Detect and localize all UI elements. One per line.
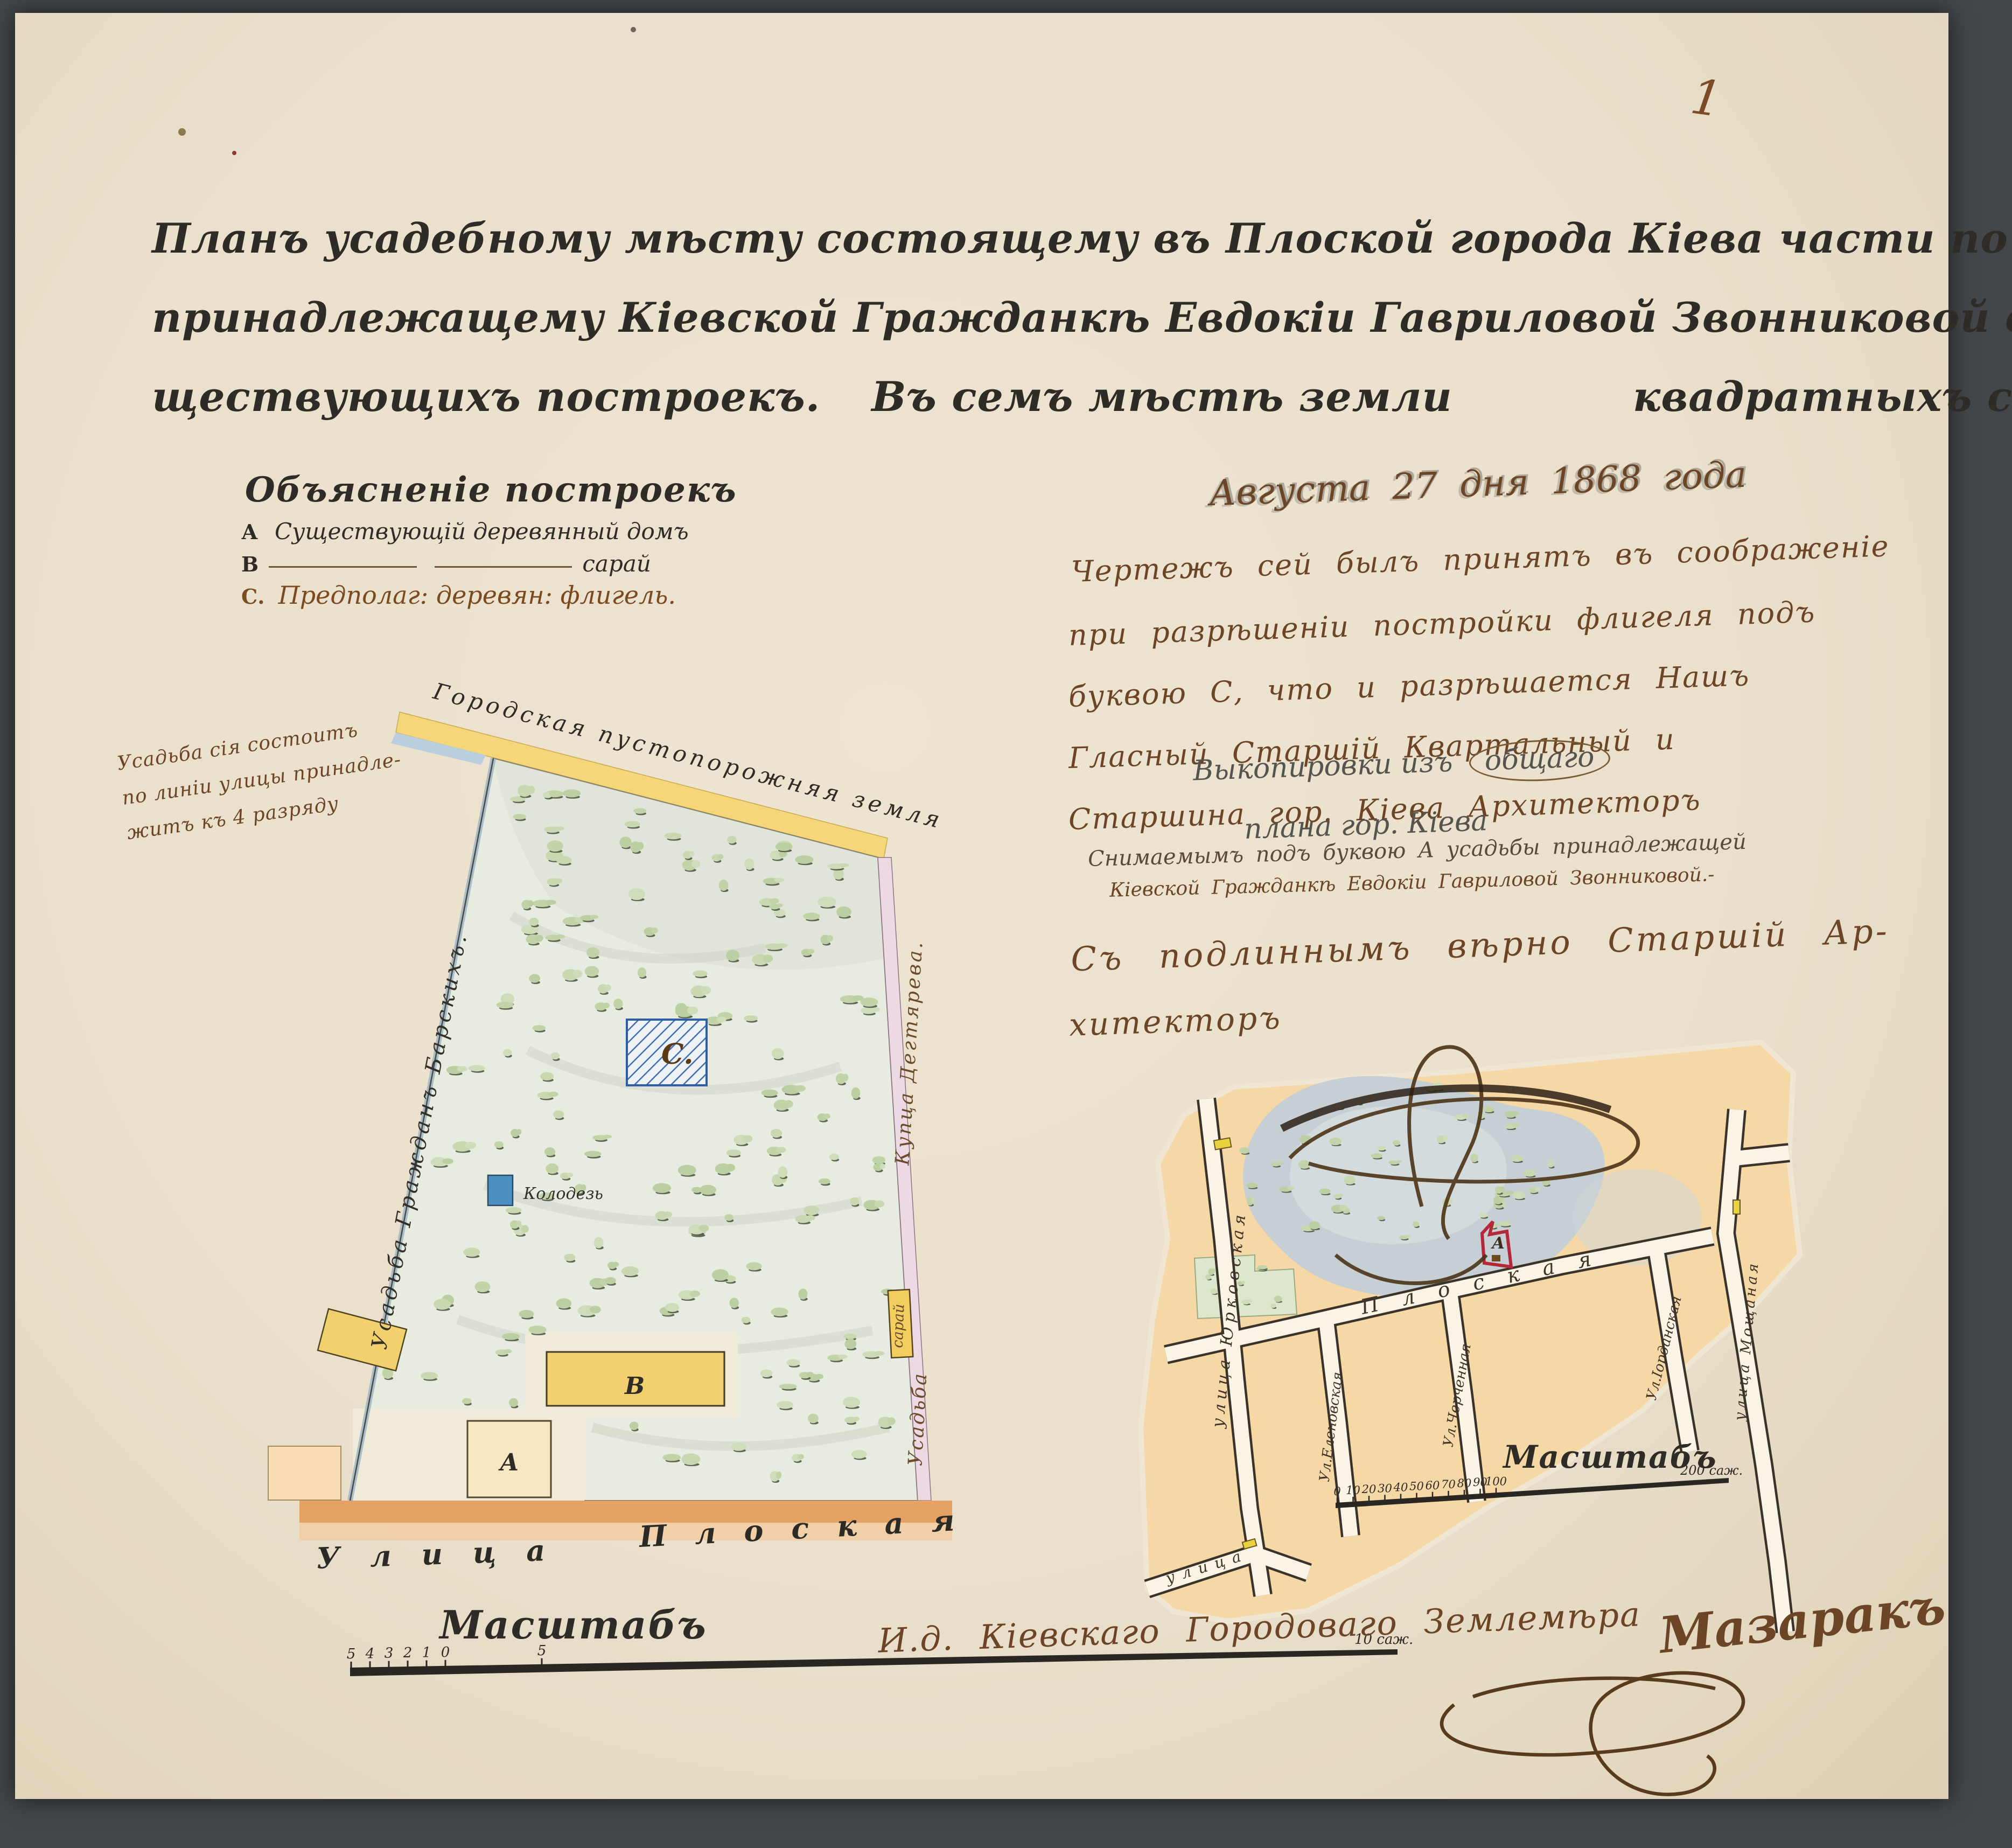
svg-text:30: 30 bbox=[1378, 1482, 1392, 1495]
svg-text:3: 3 bbox=[385, 1645, 394, 1662]
surveyor-flourish bbox=[1442, 1673, 1743, 1795]
svg-text:5: 5 bbox=[537, 1643, 547, 1659]
ditto-dash bbox=[435, 566, 572, 568]
title-line-3-left: ществующихъ построекъ. bbox=[152, 373, 820, 421]
title-line-3-mid: Въ семъ мѣстѣ земли bbox=[871, 373, 1452, 421]
svg-text:4: 4 bbox=[365, 1645, 375, 1662]
paper-speck bbox=[178, 128, 186, 136]
neighbour-building bbox=[268, 1446, 341, 1500]
svg-text:100: 100 bbox=[1485, 1475, 1507, 1488]
context-map: А улица Юрковская улица Плоская Ул.Елено… bbox=[1141, 1042, 1800, 1632]
svg-text:2: 2 bbox=[403, 1645, 413, 1661]
svg-text:80: 80 bbox=[1457, 1477, 1472, 1490]
legend-text-a: Существующій деревянный домъ bbox=[275, 518, 689, 545]
legend-item-a: А Существующій деревянный домъ bbox=[241, 518, 689, 545]
title-line-1: Планъ усадебному мѣсту состоящему въ Пло… bbox=[152, 214, 2012, 262]
parcel-a-label: А bbox=[1491, 1234, 1505, 1253]
paper-speck bbox=[631, 27, 636, 32]
small-scale-end: 200 саж. bbox=[1680, 1463, 1743, 1478]
svg-text:5: 5 bbox=[347, 1646, 356, 1662]
svg-text:20: 20 bbox=[1361, 1483, 1377, 1496]
title-line-3-right: квадратныхъ саженъ bbox=[1633, 373, 2012, 421]
legend-text-b: сарай bbox=[582, 550, 651, 577]
legend-key-a: А bbox=[241, 520, 258, 544]
well-label: Колодезь bbox=[523, 1184, 603, 1203]
svg-text:60: 60 bbox=[1426, 1479, 1440, 1492]
building-c-label: С. bbox=[661, 1038, 694, 1071]
memo-verify-2: хитекторъ bbox=[1068, 999, 1283, 1043]
legend-heading: Объясненіе построекъ bbox=[245, 470, 737, 510]
map-building bbox=[1733, 1200, 1740, 1214]
svg-text:1: 1 bbox=[422, 1645, 431, 1661]
paper-speck bbox=[232, 151, 236, 155]
main-scale-bar bbox=[350, 1649, 1398, 1676]
building-b-label: В bbox=[624, 1372, 645, 1400]
svg-text:10: 10 bbox=[1346, 1484, 1360, 1497]
svg-text:50: 50 bbox=[1409, 1480, 1424, 1493]
parcel-a-building bbox=[1492, 1255, 1500, 1261]
svg-text:70: 70 bbox=[1441, 1478, 1456, 1491]
legend-text-c: Предполаг: деревян: флигель. bbox=[278, 581, 676, 610]
ditto-dash bbox=[269, 566, 417, 568]
legend-item-b: В сарай bbox=[241, 550, 651, 577]
well bbox=[488, 1175, 513, 1205]
main-scale-heading: Масштабъ bbox=[438, 1602, 708, 1648]
svg-text:0: 0 bbox=[1333, 1485, 1340, 1498]
title-line-2: принадлежащему Кіевской Гражданкѣ Евдокі… bbox=[152, 294, 2012, 341]
title-line-3: ществующихъ построекъ. Въ семъ мѣстѣ зем… bbox=[152, 373, 2012, 421]
legend-key-b: В bbox=[241, 552, 259, 576]
svg-text:40: 40 bbox=[1393, 1481, 1408, 1494]
building-a-label: А bbox=[498, 1449, 519, 1476]
svg-text:0: 0 bbox=[441, 1644, 450, 1661]
legend-key-c: С. bbox=[241, 584, 264, 609]
legend-item-c: С. Предполаг: деревян: флигель. bbox=[241, 581, 676, 610]
shed-label: сарай bbox=[890, 1303, 908, 1348]
